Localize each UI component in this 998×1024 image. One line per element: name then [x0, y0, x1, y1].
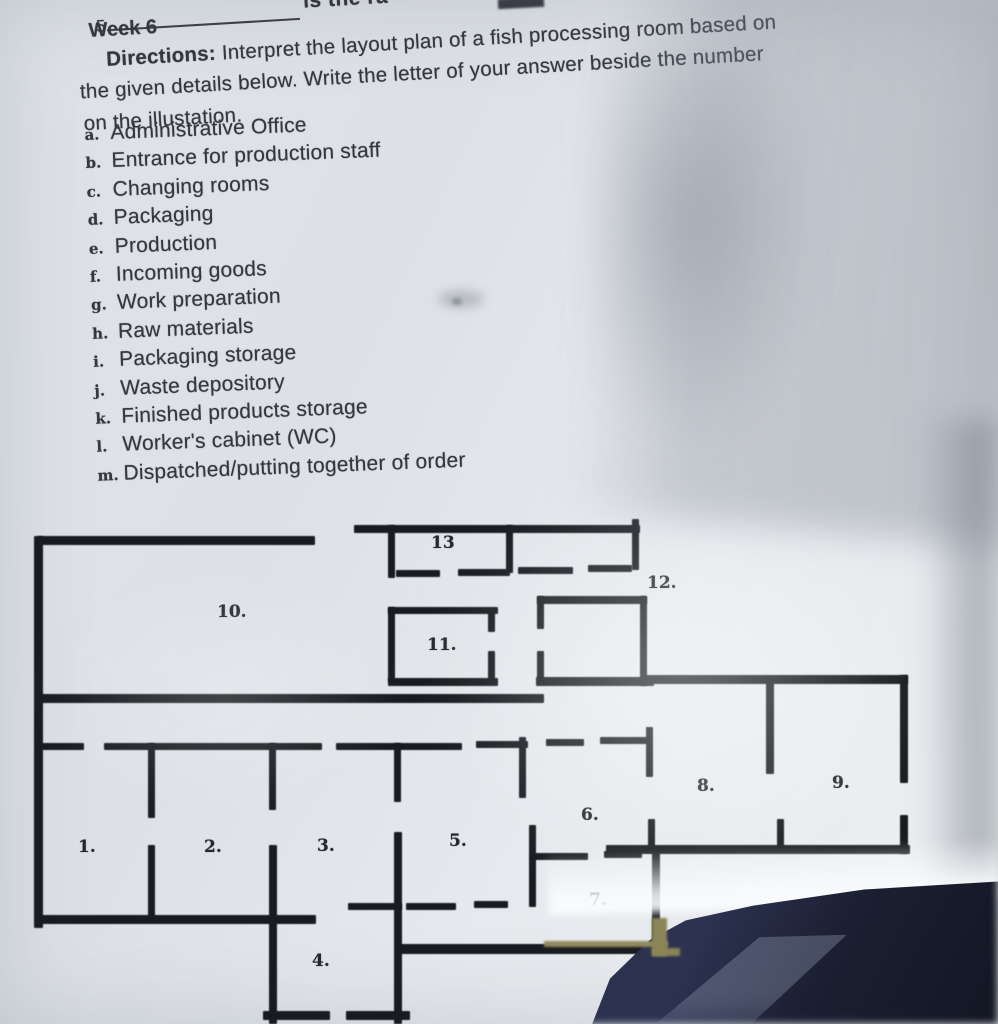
wall-segment — [269, 845, 277, 1024]
wall-segment — [488, 651, 495, 683]
wall-segment — [777, 819, 784, 847]
room-label-1: 1. — [78, 837, 96, 857]
wall-segment — [396, 570, 440, 577]
wall-segment — [34, 536, 43, 928]
wall-segment — [536, 677, 654, 686]
wall-segment — [537, 596, 647, 604]
wall-segment — [269, 743, 276, 810]
room-label-5: 5. — [449, 831, 467, 851]
wall-segment — [406, 903, 456, 910]
wall-segment — [530, 853, 588, 860]
wall-segment — [458, 569, 510, 576]
wall-segment — [388, 607, 395, 682]
wall-segment — [354, 525, 640, 533]
worksheet-photo: 5.is the ra Week 6 Directions: Interpret… — [0, 0, 998, 1024]
wall-segment — [588, 565, 632, 572]
room-label-7: 7. — [589, 890, 607, 910]
wall-segment — [388, 678, 498, 686]
wall-segment — [537, 596, 544, 629]
wall-segment — [632, 519, 639, 570]
room-label-11: 11. — [427, 635, 457, 655]
wall-segment — [488, 608, 495, 632]
room-label-3: 3. — [317, 836, 335, 856]
wall-segment — [766, 683, 774, 774]
wall-segment — [519, 737, 526, 798]
wall-segment — [506, 525, 513, 573]
wall-segment — [104, 743, 322, 750]
room-label-12: 12. — [647, 573, 677, 593]
wall-segment — [388, 607, 498, 614]
wall-segment — [398, 944, 666, 954]
wall-segment — [640, 596, 647, 686]
wall-segment — [900, 815, 908, 854]
wall-segment — [537, 651, 544, 684]
wall-segment — [38, 536, 315, 545]
wall-segment — [394, 743, 401, 802]
room-label-8: 8. — [697, 776, 715, 796]
wall-segment — [652, 851, 660, 948]
room-label-4: 4. — [312, 951, 330, 971]
wall-segment — [148, 743, 155, 818]
room-label-13: 13 — [431, 533, 455, 553]
room-label-6: 6. — [581, 805, 599, 825]
room-label-9: 9. — [832, 773, 850, 793]
room-label-2: 2. — [204, 837, 222, 857]
floor-plan: 1. 2. 3. 4. 5. 6. 7. 8. 9. 10. 11. 12. 1… — [0, 0, 998, 1024]
room-label-10: 10. — [217, 602, 247, 622]
wall-segment — [38, 743, 84, 750]
wall-segment — [474, 901, 508, 908]
wall-segment — [148, 845, 155, 918]
wall-segment — [546, 739, 584, 746]
wall-segment — [900, 675, 908, 783]
wall-segment — [529, 825, 536, 907]
wall-segment — [600, 737, 650, 744]
wall-segment — [388, 525, 395, 578]
wall-segment — [648, 819, 655, 853]
wall-segment — [644, 675, 908, 684]
wall-segment — [646, 727, 653, 777]
wall-segment — [518, 567, 573, 574]
wall-segment — [394, 832, 402, 1024]
wall-segment — [36, 694, 544, 703]
